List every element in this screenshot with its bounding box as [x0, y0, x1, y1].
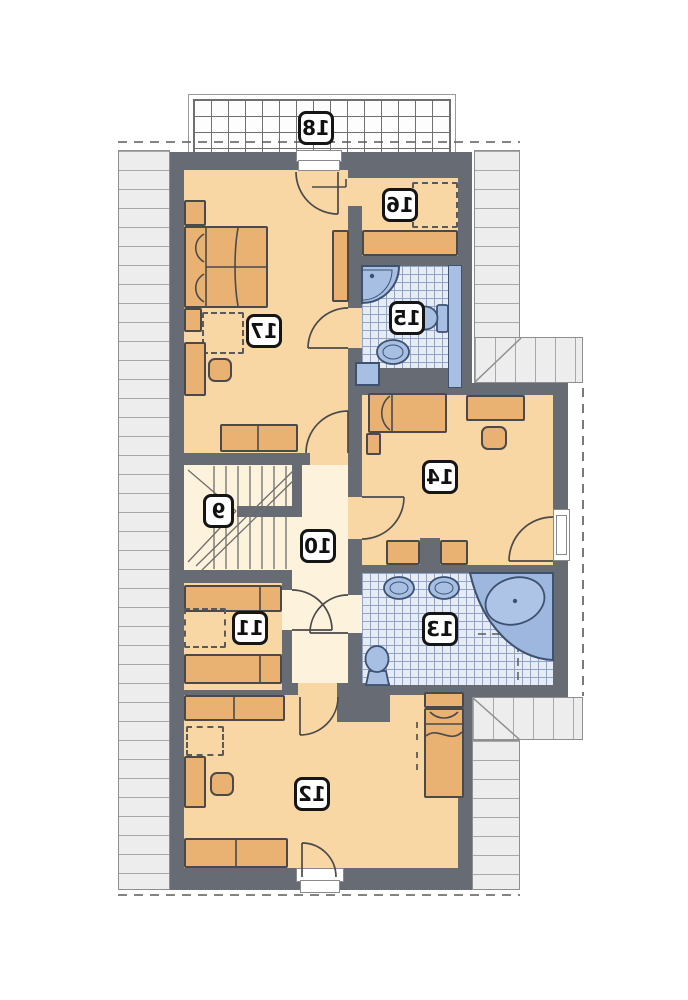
room-number: 13	[426, 617, 454, 641]
room-number: 17	[250, 319, 278, 343]
roof-strip-bottom-right	[472, 740, 520, 890]
planned-closet-16	[412, 182, 458, 228]
roof-piece-bottom-right-horizontal	[472, 697, 583, 740]
room-label-17: 17	[246, 314, 282, 348]
chimney-block	[337, 683, 390, 722]
roof-strip-top-right	[474, 150, 520, 338]
desk-14	[466, 395, 525, 421]
room-14-exterior-door-frame-inner	[556, 515, 567, 555]
door-opening-17-hall	[310, 453, 348, 465]
bottom-door-threshold-inner	[300, 880, 340, 893]
wardrobe-16	[362, 230, 458, 256]
room-number: 11	[236, 616, 264, 640]
room-label-18: 18	[298, 111, 334, 145]
sofa-12-bottom	[184, 838, 288, 868]
floor-plan-canvas: 18 17 16 15 14 9 10 11 13 12	[0, 0, 688, 1000]
room-number: 9	[212, 499, 226, 523]
cabinet-14-right	[440, 540, 468, 565]
room-number: 18	[302, 116, 330, 140]
room-label-12: 12	[294, 777, 330, 811]
door-opening-15	[348, 308, 362, 348]
door-opening-13	[348, 595, 362, 633]
room-number: 12	[298, 782, 326, 806]
sofa-17	[220, 424, 298, 452]
planned-furniture-11	[184, 608, 226, 648]
shaft-15	[448, 265, 462, 388]
nightstand	[366, 433, 381, 455]
stairs-floor	[184, 465, 292, 570]
cabinet-14-left	[386, 540, 420, 565]
door-opening-12	[298, 683, 337, 695]
planned-wardrobe-17	[202, 312, 244, 354]
room-number: 14	[426, 465, 454, 489]
room-number: 10	[304, 534, 332, 558]
nightstand	[184, 200, 206, 226]
room-label-15: 15	[389, 301, 425, 335]
balcony-door-threshold-inner	[298, 160, 340, 171]
roof-piece-top-right-horizontal	[474, 337, 583, 383]
double-bed-17	[184, 226, 268, 308]
couch-12-top	[184, 695, 285, 721]
bed-12	[424, 708, 464, 798]
tall-cabinet-17	[332, 230, 349, 302]
chair-12	[210, 772, 234, 796]
bed-14	[368, 393, 447, 433]
planned-furniture-12	[186, 726, 224, 756]
door-opening-16	[348, 178, 362, 206]
room-14-wall-stub	[420, 538, 440, 565]
chair-17	[208, 358, 232, 382]
room-label-14: 14	[422, 460, 458, 494]
door-opening-14	[348, 497, 362, 539]
wardrobe-12	[424, 692, 464, 708]
washer-15	[355, 362, 380, 386]
desk-17	[184, 342, 206, 396]
chair-14	[481, 426, 507, 450]
room-label-16: 16	[382, 188, 418, 222]
room-label-10: 10	[300, 529, 336, 563]
stair-divider	[237, 506, 302, 517]
room-label-11: 11	[232, 611, 268, 645]
room-label-13: 13	[422, 612, 458, 646]
bed-11-bottom	[184, 654, 282, 684]
room-label-9: 9	[203, 494, 234, 528]
hall-floor-upper	[302, 465, 348, 517]
nightstand	[184, 308, 202, 332]
room-number: 16	[386, 193, 414, 217]
room-number: 15	[393, 306, 421, 330]
desk-12	[184, 756, 206, 808]
roof-strip-left	[118, 150, 170, 890]
door-opening-11	[282, 590, 292, 630]
